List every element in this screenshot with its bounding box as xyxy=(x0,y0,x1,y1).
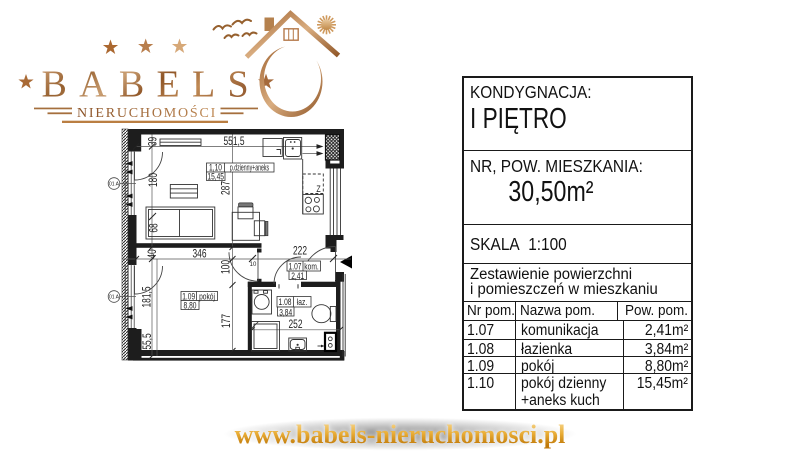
svg-text:NIERUCHOMOŚCI: NIERUCHOMOŚCI xyxy=(77,104,217,121)
svg-text:BABELS: BABELS xyxy=(42,64,262,106)
